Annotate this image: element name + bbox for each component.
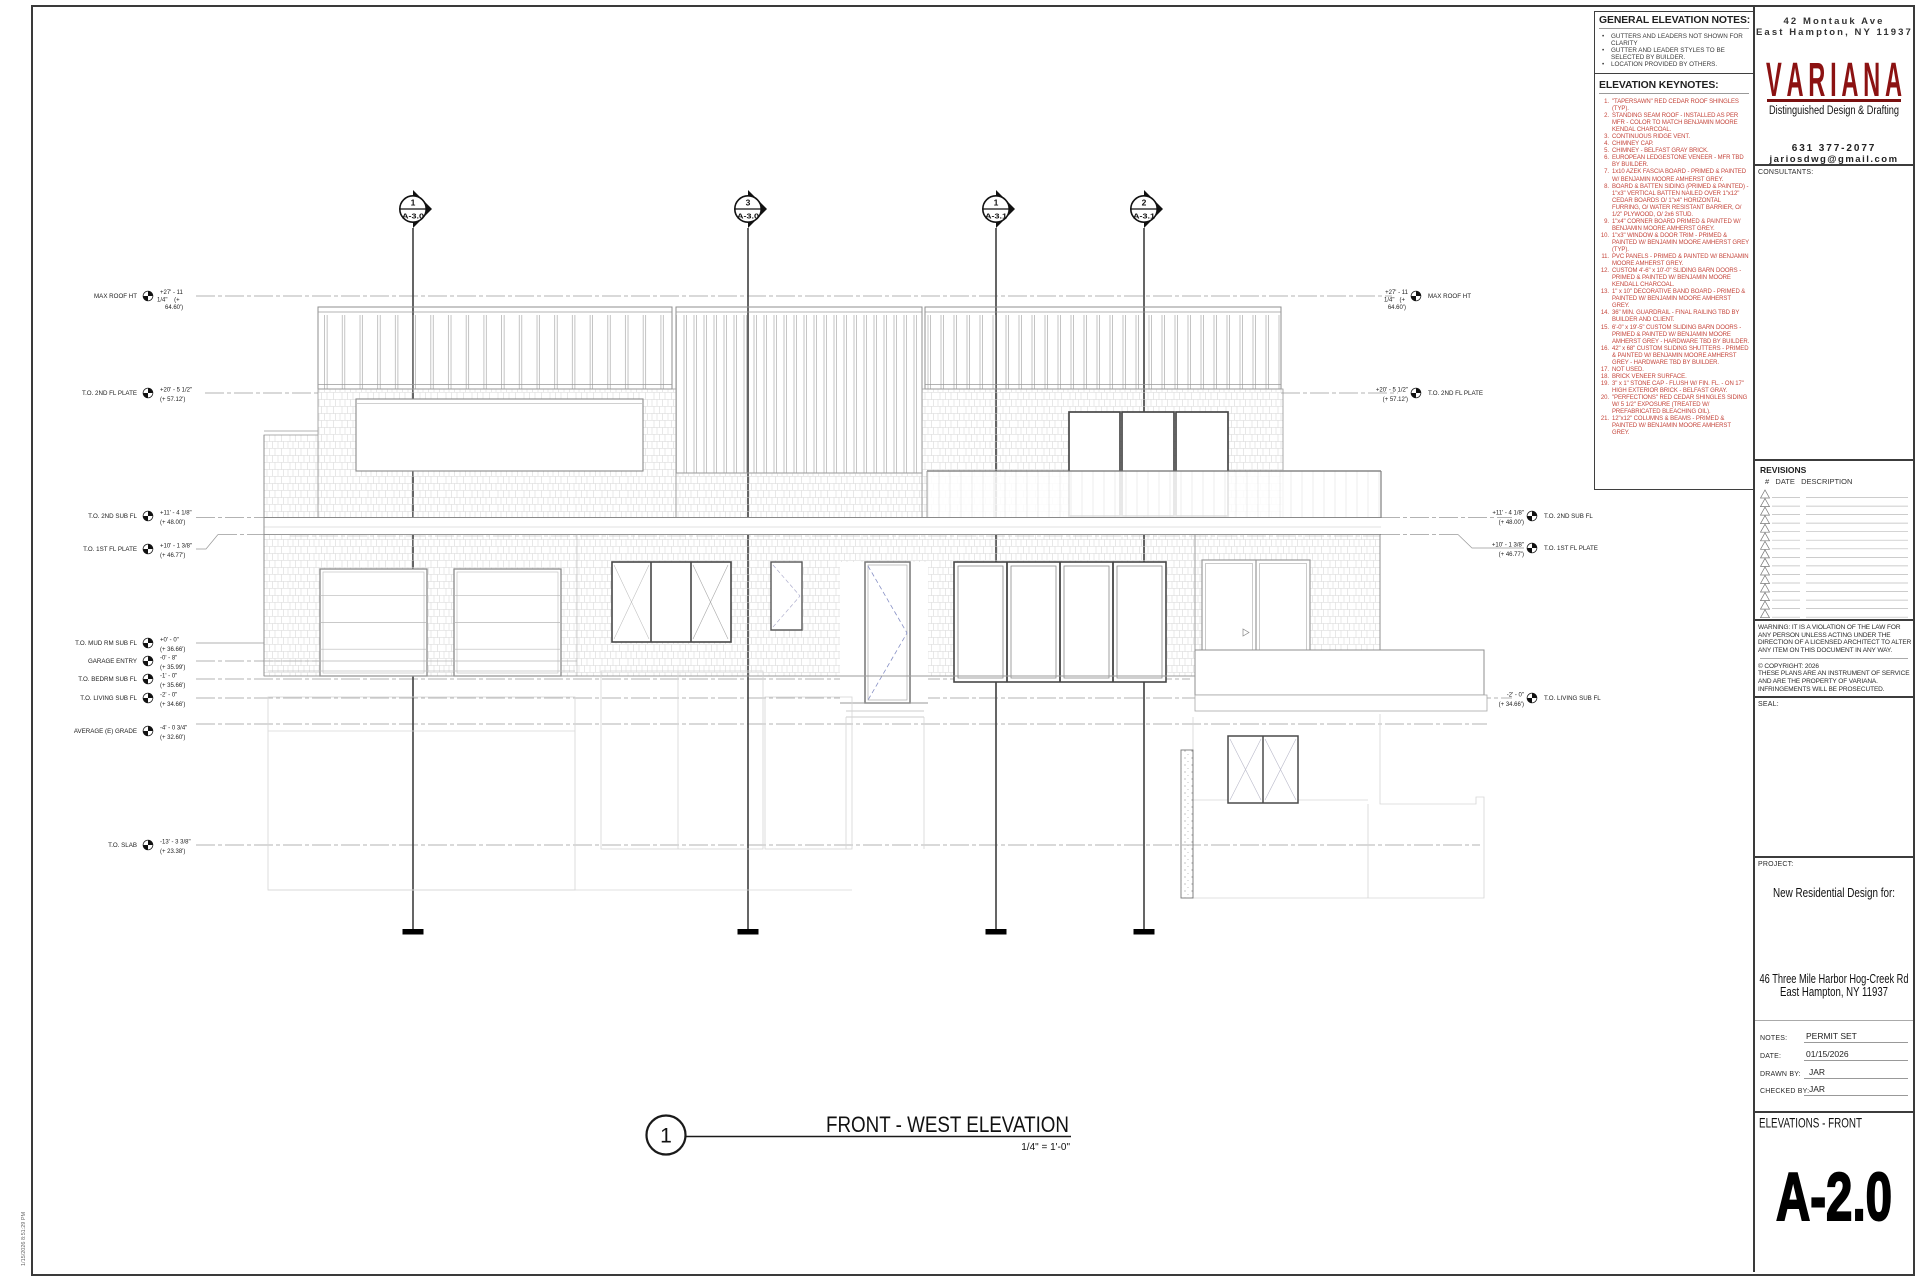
svg-text:A-2.0: A-2.0 (1776, 1162, 1892, 1232)
svg-text:East Hampton, NY 11937: East Hampton, NY 11937 (1780, 985, 1888, 999)
svg-text:ELEVATIONS - FRONT: ELEVATIONS - FRONT (1759, 1115, 1862, 1131)
svg-text:New Residential Design for:: New Residential Design for: (1773, 885, 1895, 900)
svg-text:46 Three Mile Harbor Hog-Creek: 46 Three Mile Harbor Hog-Creek Rd (1760, 972, 1909, 986)
